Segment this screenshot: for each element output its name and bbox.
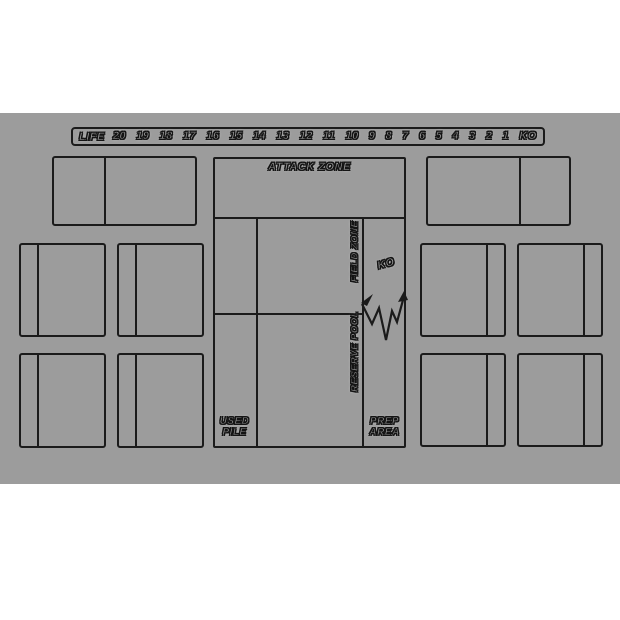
- life-value: 11: [323, 130, 335, 143]
- life-value: 17: [183, 130, 196, 143]
- life-value: 16: [206, 130, 219, 143]
- ko-burst-icon: [356, 285, 408, 349]
- life-value: KO: [519, 130, 537, 143]
- life-value: 14: [253, 130, 266, 143]
- slot-strip-line: [583, 245, 585, 335]
- card-slot-right-row2-b[interactable]: [517, 353, 603, 447]
- slot-strip-line: [37, 355, 39, 446]
- life-value: 13: [276, 130, 289, 143]
- card-slot-left-row1-a[interactable]: [19, 243, 106, 337]
- card-slot-right-row1-b[interactable]: [517, 243, 603, 337]
- slot-strip-line: [486, 245, 488, 335]
- card-slot-left-row1-b[interactable]: [117, 243, 204, 337]
- card-slot-left-row2-a[interactable]: [19, 353, 106, 448]
- life-value: 10: [345, 130, 358, 143]
- card-slot-top-left-pair[interactable]: [52, 156, 197, 226]
- life-track[interactable]: LIFE 2019181716151413121110987654321KO: [71, 127, 545, 146]
- life-value: 5: [436, 130, 443, 143]
- life-value: 3: [469, 130, 476, 143]
- life-value: 19: [136, 130, 149, 143]
- life-value: 4: [452, 130, 459, 143]
- life-value: 7: [402, 130, 409, 143]
- playmat: LIFE 2019181716151413121110987654321KO: [0, 113, 620, 484]
- life-value: 20: [113, 130, 126, 143]
- life-value: 8: [386, 130, 393, 143]
- card-slot-top-right-pair[interactable]: [426, 156, 571, 226]
- field-reserve-divider: [215, 313, 364, 315]
- used-pile-column-line: [256, 219, 258, 446]
- playmat-image: LIFE 2019181716151413121110987654321KO: [0, 0, 620, 620]
- life-value: 18: [160, 130, 173, 143]
- life-value: 15: [230, 130, 243, 143]
- slot-divider: [519, 158, 521, 224]
- life-value: 9: [369, 130, 376, 143]
- card-slot-left-row2-b[interactable]: [117, 353, 204, 448]
- prep-area-label: PREP AREA: [362, 417, 407, 438]
- life-values: 2019181716151413121110987654321KO: [113, 130, 537, 143]
- slot-strip-line: [583, 355, 585, 445]
- slot-divider: [104, 158, 106, 224]
- slot-strip-line: [135, 245, 137, 335]
- used-pile-label: USED PILE: [213, 417, 256, 438]
- life-label: LIFE: [79, 131, 105, 143]
- slot-strip-line: [486, 355, 488, 445]
- slot-strip-line: [37, 245, 39, 335]
- attack-zone-label: ATTACK ZONE: [213, 161, 406, 173]
- slot-strip-line: [135, 355, 137, 446]
- life-value: 2: [486, 130, 493, 143]
- life-value: 12: [300, 130, 313, 143]
- life-value: 1: [503, 130, 510, 143]
- card-slot-right-row1-a[interactable]: [420, 243, 506, 337]
- life-value: 6: [419, 130, 426, 143]
- card-slot-right-row2-a[interactable]: [420, 353, 506, 447]
